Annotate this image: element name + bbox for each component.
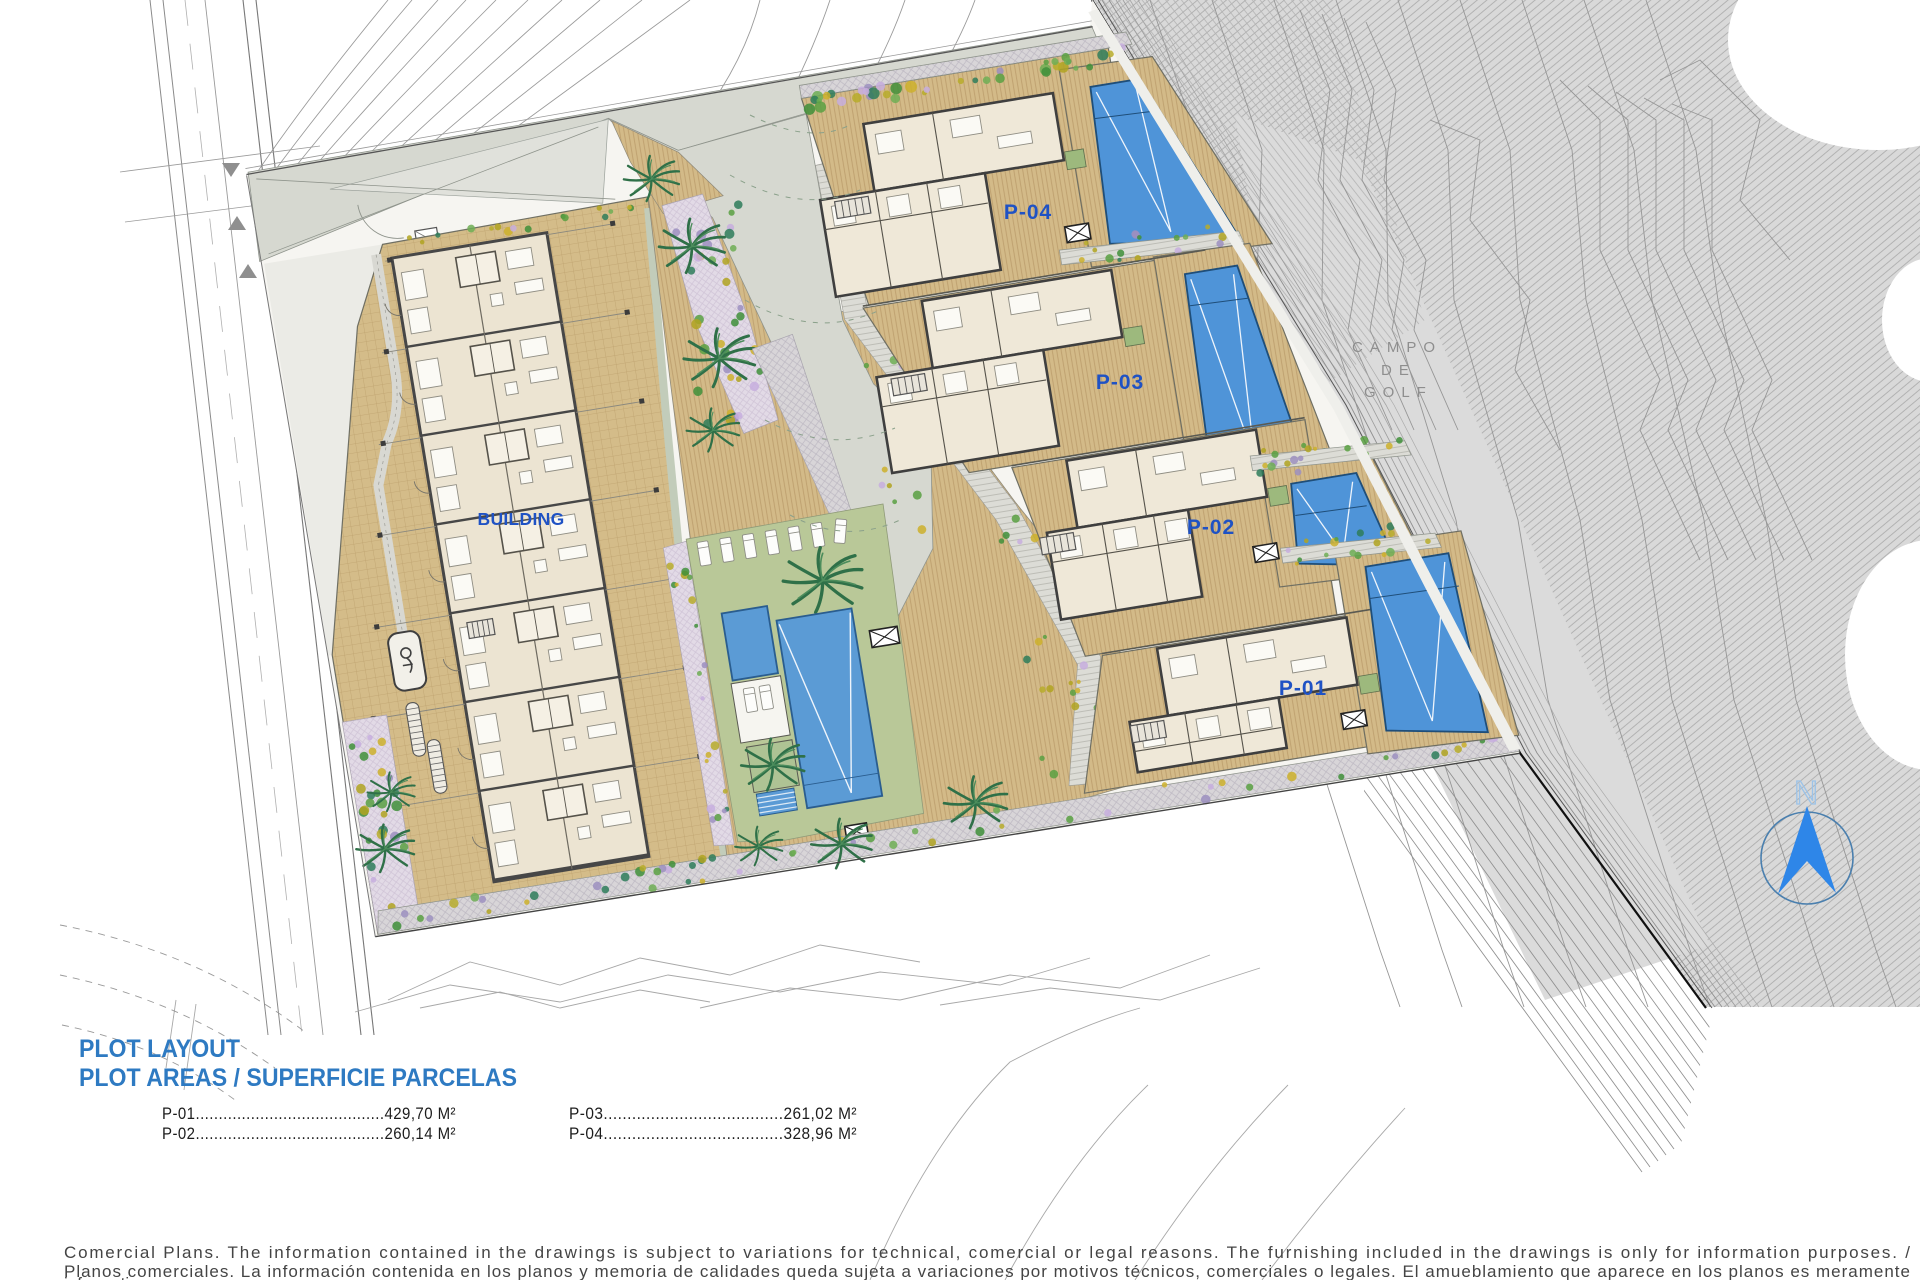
svg-text:N: N [1794,774,1818,811]
svg-text:PLOT LAYOUT: PLOT LAYOUT [79,1035,240,1063]
svg-text:GOLF: GOLF [1364,384,1433,401]
svg-text:BUILDING: BUILDING [478,509,565,529]
svg-text:Planos comerciales. La informa: Planos comerciales. La información conte… [64,1262,1910,1280]
svg-text:P-03..........................: P-03....................................… [569,1104,857,1123]
svg-text:Comercial Plans. The informati: Comercial Plans. The information contain… [64,1243,1910,1262]
svg-text:P-04: P-04 [1004,201,1052,224]
svg-text:P-02..........................: P-02....................................… [162,1124,456,1143]
svg-text:P-02: P-02 [1187,516,1235,539]
svg-text:informativo.: informativo. [64,1274,152,1280]
svg-text:P-01: P-01 [1279,677,1327,700]
svg-text:CAMPO: CAMPO [1352,339,1442,356]
svg-text:P-01..........................: P-01....................................… [162,1104,456,1123]
svg-text:PLOT AREAS / SUPERFICIE PARCEL: PLOT AREAS / SUPERFICIE PARCELAS [79,1064,517,1092]
svg-text:P-04..........................: P-04....................................… [569,1124,857,1143]
svg-text:P-03: P-03 [1096,371,1144,394]
svg-text:DE: DE [1381,362,1416,379]
